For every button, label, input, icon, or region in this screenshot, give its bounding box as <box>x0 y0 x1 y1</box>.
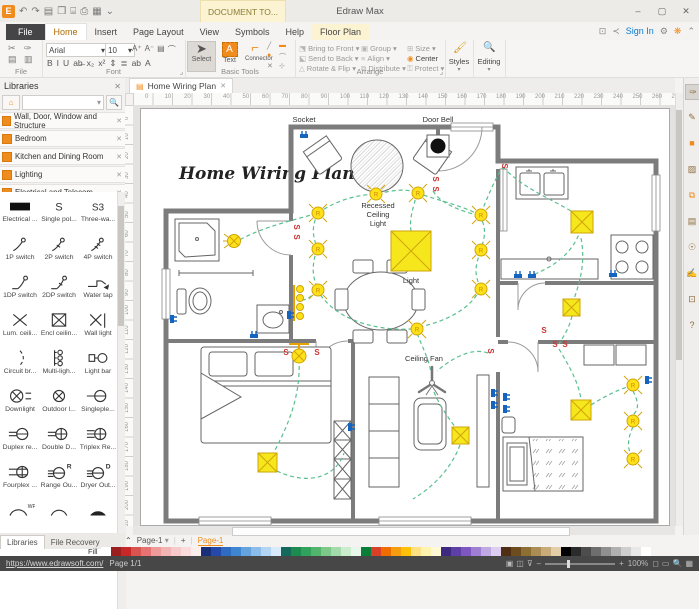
recessed-ceiling-light[interactable] <box>309 204 327 222</box>
color-swatch[interactable] <box>101 547 111 556</box>
sign-in-link[interactable]: Sign In <box>626 26 654 36</box>
open-icon[interactable]: ❒ <box>57 6 66 17</box>
color-swatch[interactable] <box>481 547 491 556</box>
arc-text-icon[interactable]: ⌒ <box>168 44 176 55</box>
color-swatch[interactable] <box>211 547 221 556</box>
symbol-sw2[interactable]: 2P switch <box>40 234 78 261</box>
grow-font-icon[interactable]: A⁺ <box>132 44 142 55</box>
fill-color-icon[interactable]: ■ <box>685 136 699 150</box>
title-bar: E↶↷▤❒⌸⎙▦⌄ DOCUMENT TO... Edraw Max – ▢ ✕ <box>0 0 699 23</box>
switch-symbol[interactable]: S <box>292 234 301 240</box>
color-swatch[interactable] <box>201 547 211 556</box>
recessed-ceiling-light[interactable] <box>309 240 327 258</box>
ceiling-light-main[interactable] <box>391 231 431 271</box>
ellipse-tool-icon[interactable]: ● <box>267 52 278 61</box>
symbol-circ[interactable]: Circuit br... <box>1 348 39 375</box>
h-ruler-tick: 0 <box>145 94 148 100</box>
symbol-arcf[interactable] <box>79 500 117 520</box>
libraries-close-icon[interactable]: ✕ <box>114 82 121 91</box>
v-ruler-tick: 210 <box>125 519 130 526</box>
zoom-slider-knob[interactable] <box>567 560 570 568</box>
h-ruler-tick: 100 <box>340 94 350 100</box>
fit-icons: ◻▭🔍▦ <box>652 559 693 568</box>
magnifier-icon[interactable]: 🔍 <box>672 559 682 568</box>
text-tool-button[interactable]: A Text <box>216 41 243 70</box>
symbol-label: 2DP switch <box>40 292 78 299</box>
canvas-area[interactable]: R Home Wiring Plan <box>133 105 675 526</box>
recessed-label-3: Light <box>370 219 387 228</box>
h-ruler-tick: 200 <box>535 94 545 100</box>
socket-symbol[interactable] <box>503 405 510 413</box>
zoom-level: 100% <box>628 559 648 568</box>
color-swatch[interactable] <box>431 547 441 556</box>
page-view-icon[interactable]: ◫ <box>516 559 524 568</box>
export-icon[interactable]: ▦ <box>92 6 101 17</box>
pen-tool-icon[interactable]: ✎ <box>685 110 699 124</box>
menu-tab-page-layout[interactable]: Page Layout <box>125 24 192 40</box>
symbol-label: Single pol... <box>40 216 78 223</box>
font-name-select[interactable]: Arial▾ <box>46 43 108 57</box>
arrange-item-bring-to-front--[interactable]: ⬔Bring to Front ▾ <box>299 44 359 53</box>
picture-icon[interactable]: ▨ <box>685 162 699 176</box>
symbol-arcwp[interactable]: WP <box>1 500 39 520</box>
color-swatch[interactable] <box>191 547 201 556</box>
symbol-label: Water tap <box>79 292 117 299</box>
symbol-dp1[interactable]: 1DP switch <box>1 272 39 299</box>
ribbon-group-styles: 🖌 Styles ▾ <box>445 40 474 77</box>
symbol-sw4[interactable]: 4P switch <box>79 234 117 261</box>
color-swatch[interactable] <box>261 547 271 556</box>
menu-bar: FileHomeInsertPage LayoutViewSymbolsHelp… <box>0 22 699 40</box>
search-icon[interactable]: 🔍 <box>106 95 122 110</box>
color-swatch[interactable] <box>271 547 281 556</box>
font-expander-icon[interactable]: ⌟ <box>180 69 183 76</box>
switch-symbol[interactable]: S <box>552 340 558 349</box>
recessed-ceiling-light[interactable] <box>309 281 327 299</box>
color-swatch[interactable] <box>611 547 621 556</box>
h-ruler-tick: 80 <box>301 94 308 100</box>
arrange-item-size--[interactable]: ⊞Size ▾ <box>407 44 436 53</box>
color-swatch[interactable] <box>381 547 391 556</box>
color-swatch[interactable] <box>571 547 581 556</box>
symbol-label: Duplex re... <box>1 444 39 451</box>
menu-tab-insert[interactable]: Insert <box>87 24 126 40</box>
switch-symbol[interactable]: S <box>431 176 440 182</box>
ribbon-group-editing: 🔍 Editing ▾ <box>473 40 506 77</box>
color-swatch[interactable] <box>111 547 121 556</box>
wall-light[interactable] <box>223 234 241 248</box>
status-bar: https://www.edrawsoft.com/ Page 1/1 ▣◫⊽ … <box>0 556 699 571</box>
editing-dropdown-icon[interactable]: ▾ <box>473 66 505 73</box>
color-swatch[interactable] <box>601 547 611 556</box>
note-icon[interactable]: ▤ <box>685 214 699 228</box>
arrange-item-center[interactable]: ◉Center <box>407 54 438 63</box>
v-ruler-tick: 170 <box>125 441 130 451</box>
color-swatch[interactable] <box>241 547 251 556</box>
h-ruler-tick: 40 <box>223 94 230 100</box>
color-swatch[interactable] <box>121 547 131 556</box>
symbol-outd[interactable]: Outdoor l... <box>40 386 78 413</box>
drawing-page[interactable]: R Home Wiring Plan <box>140 108 670 526</box>
ribbon: ✂ ✑ ▤ ▥ File Arial▾ 10▾ A⁺A⁻▤⌒ BIUab̶x₂x… <box>0 40 699 78</box>
color-swatch[interactable] <box>521 547 531 556</box>
symbol-label: Double D... <box>40 444 78 451</box>
fit-page-icon[interactable]: ▭ <box>662 559 670 568</box>
h-ruler-tick: 190 <box>516 94 526 100</box>
svg-text:WP: WP <box>28 504 35 510</box>
arrange-item-send-to-back--[interactable]: ⬕Send to Back ▾ <box>299 54 359 63</box>
color-swatch[interactable] <box>591 547 601 556</box>
edit-doc-icon[interactable]: ✍ <box>685 266 699 280</box>
layers-icon[interactable]: ⊽ <box>527 559 533 568</box>
category-close-icon[interactable]: ✕ <box>116 135 122 143</box>
recessed-ceiling-light[interactable] <box>408 320 426 338</box>
menu-tab-home[interactable]: Home <box>45 23 87 40</box>
arrange-expander-icon[interactable]: ⌟ <box>440 69 443 76</box>
color-swatch[interactable] <box>391 547 401 556</box>
styles-button[interactable]: Styles <box>445 57 473 66</box>
color-swatch[interactable] <box>331 547 341 556</box>
symbol-label: Downlight <box>1 406 39 413</box>
share-icon[interactable]: ≺ <box>612 26 620 37</box>
grid-icon[interactable]: ▦ <box>685 559 693 568</box>
ceiling-fan[interactable] <box>419 367 445 395</box>
symbol-down[interactable]: Downlight <box>1 386 39 413</box>
h-ruler-tick: 20 <box>184 94 191 100</box>
v-ruler-tick: 50 <box>125 211 130 218</box>
comment-icon[interactable]: ⊡ <box>685 292 699 306</box>
category-label: Lighting <box>15 170 42 179</box>
help-icon[interactable]: ? <box>685 318 699 332</box>
color-swatch[interactable] <box>131 547 141 556</box>
add-page-button[interactable]: + <box>181 536 186 545</box>
print-icon[interactable]: ⎙ <box>80 6 88 17</box>
zoom-slider[interactable] <box>545 563 615 565</box>
category-close-icon[interactable]: ✕ <box>116 153 122 161</box>
color-swatch[interactable] <box>531 547 541 556</box>
menu-tab-symbols[interactable]: Symbols <box>227 24 278 40</box>
symbol-four[interactable]: Fourplex ... <box>1 462 39 489</box>
recessed-ceiling-light[interactable] <box>472 280 490 298</box>
color-swatch[interactable] <box>151 547 161 556</box>
color-swatch[interactable] <box>621 547 631 556</box>
category-label: Kitchen and Dining Room <box>15 152 103 161</box>
symbol-dbl[interactable]: Double D... <box>40 424 78 451</box>
h-ruler-tick: 60 <box>262 94 269 100</box>
symbol-single[interactable]: Singleple... <box>79 386 117 413</box>
color-swatch[interactable] <box>181 547 191 556</box>
h-ruler-tick: 240 <box>613 94 623 100</box>
library-home-icon[interactable]: ⌂ <box>2 95 20 110</box>
library-category-lighting[interactable]: Lighting✕ <box>0 166 125 183</box>
color-swatch[interactable] <box>301 547 311 556</box>
v-ruler-tick: 60 <box>125 230 130 237</box>
color-swatch[interactable] <box>561 547 571 556</box>
switch-symbol[interactable]: S <box>500 163 509 169</box>
color-swatch[interactable] <box>441 547 451 556</box>
symbol-range[interactable]: RRange Ou... <box>40 462 78 489</box>
fit-width-icon[interactable]: ◻ <box>652 559 659 568</box>
symbol-label: Fourplex ... <box>1 482 39 489</box>
symbol-elec[interactable]: Electrical ... <box>1 196 39 223</box>
switch-symbol[interactable]: S <box>431 186 440 192</box>
h-ruler-tick: 10 <box>165 94 172 100</box>
category-label: Wall, Door, Window and Structure <box>14 112 116 130</box>
font-size-select[interactable]: 10▾ <box>105 43 135 57</box>
ribbon-group-font: Arial▾ 10▾ A⁺A⁻▤⌒ BIUab̶x₂x²⇕≣abA Font ⌟ <box>42 40 186 77</box>
vertical-scrollbar-thumb[interactable] <box>676 110 682 360</box>
v-ruler-tick: 110 <box>125 325 130 335</box>
v-ruler-tick: 100 <box>125 305 130 315</box>
library-icon <box>2 152 12 162</box>
color-swatch[interactable] <box>231 547 241 556</box>
basic-tools-group-label: Basic Tools <box>185 67 295 76</box>
color-swatch[interactable] <box>171 547 181 556</box>
format-brush-icon[interactable]: ✑ <box>24 44 32 53</box>
color-palette <box>101 547 651 556</box>
undo-icon[interactable]: ↶ <box>19 6 27 17</box>
color-swatch[interactable] <box>371 547 381 556</box>
page-selector[interactable]: Page-1 ▾ <box>137 536 169 545</box>
color-swatch[interactable] <box>221 547 231 556</box>
socket-symbol[interactable] <box>300 131 308 138</box>
symbol-tap[interactable]: Water tap <box>79 272 117 299</box>
curve-tool-icon[interactable]: ⌒ <box>279 52 290 61</box>
recessed-ceiling-light[interactable] <box>624 376 642 394</box>
theme-icon[interactable]: ❋ <box>674 26 682 37</box>
zoom-in-button[interactable]: + <box>619 559 624 568</box>
v-ruler-tick: 0 <box>125 117 130 120</box>
paste-icon[interactable]: ▥ <box>24 55 33 64</box>
format-painter-icon[interactable]: ✑ <box>685 84 699 100</box>
recessed-ceiling-light[interactable] <box>409 184 427 202</box>
symbol-label: Triplex Re... <box>79 444 117 451</box>
color-swatch[interactable] <box>251 547 261 556</box>
color-swatch[interactable] <box>161 547 171 556</box>
color-swatch[interactable] <box>471 547 481 556</box>
h-ruler-tick: 30 <box>204 94 211 100</box>
symbol-label: 1P switch <box>1 254 39 261</box>
rect-tool-icon[interactable]: ▬ <box>279 42 290 51</box>
symbol-s1[interactable]: SSingle pol... <box>40 196 78 223</box>
color-swatch[interactable] <box>411 547 421 556</box>
color-swatch[interactable] <box>351 547 361 556</box>
socket-symbol[interactable] <box>503 393 510 401</box>
editing-button[interactable]: Editing <box>473 57 505 66</box>
library-icon <box>2 134 12 144</box>
text-style-icon[interactable]: ▤ <box>157 44 165 55</box>
symbol-dryer[interactable]: DDryer Out... <box>79 462 117 489</box>
h-ruler-tick: 140 <box>418 94 428 100</box>
color-swatch[interactable] <box>341 547 351 556</box>
library-search-input[interactable]: ▾ <box>22 95 104 110</box>
symbol-label: Wall light <box>79 330 117 337</box>
color-swatch[interactable] <box>501 547 511 556</box>
h-ruler-tick: 160 <box>457 94 467 100</box>
library-scrollbar-thumb[interactable] <box>118 206 124 326</box>
h-ruler-tick: 170 <box>477 94 487 100</box>
collapse-ribbon-icon[interactable]: ⌃ <box>687 26 695 37</box>
h-ruler-tick: 220 <box>574 94 584 100</box>
color-swatch[interactable] <box>451 547 461 556</box>
document-tab-close-icon[interactable]: ✕ <box>220 82 226 90</box>
color-swatch[interactable] <box>631 547 641 556</box>
library-category-kitchen-and-dining-room[interactable]: Kitchen and Dining Room✕ <box>0 148 125 165</box>
save-icon[interactable]: ⌸ <box>70 6 76 17</box>
v-ruler-tick: 140 <box>125 383 130 393</box>
color-swatch[interactable] <box>541 547 551 556</box>
color-swatch[interactable] <box>461 547 471 556</box>
arrange-item-group--[interactable]: ▣Group ▾ <box>361 44 397 53</box>
styles-icon: 🖌 <box>453 43 467 54</box>
recessed-ceiling-light[interactable] <box>624 412 642 430</box>
arrange-item-align--[interactable]: ≡Align ▾ <box>361 54 390 63</box>
color-swatch[interactable] <box>281 547 291 556</box>
category-close-icon[interactable]: ✕ <box>116 171 122 179</box>
edrawsoft-link[interactable]: https://www.edrawsoft.com/ <box>6 559 103 568</box>
h-ruler-tick: 210 <box>555 94 565 100</box>
document-tools-context-tab[interactable]: DOCUMENT TO... <box>200 0 286 24</box>
copy-icon[interactable]: ▤ <box>8 55 17 64</box>
switch-symbol[interactable]: S <box>541 326 547 335</box>
symbol-multi[interactable]: Multi-ligh... <box>40 348 78 375</box>
page-tab-row: ⌃ Page-1 ▾ | + | Page-1 <box>125 535 699 546</box>
color-swatch[interactable] <box>511 547 521 556</box>
collapse-panel-icon[interactable]: ⌃ <box>125 536 132 545</box>
color-swatch[interactable] <box>641 547 651 556</box>
view-mode-icons: ▣◫⊽ <box>506 559 533 568</box>
switch-symbol[interactable]: S <box>562 340 568 349</box>
font-group-label: Font <box>42 67 185 76</box>
socket-symbol[interactable] <box>170 315 177 323</box>
snapshot-icon[interactable]: ⊡ <box>599 26 607 37</box>
color-swatch[interactable] <box>581 547 591 556</box>
recessed-ceiling-light[interactable] <box>624 450 642 468</box>
v-ruler-tick: 90 <box>125 289 130 296</box>
switch-symbol[interactable]: S <box>486 348 495 354</box>
color-swatch[interactable] <box>491 547 501 556</box>
library-icon <box>2 116 11 126</box>
menu-tab-file[interactable]: File <box>6 24 45 40</box>
color-swatch[interactable] <box>321 547 331 556</box>
v-ruler-tick: 80 <box>125 269 130 276</box>
recessed-ceiling-light[interactable] <box>472 241 490 259</box>
h-ruler-tick: 130 <box>399 94 409 100</box>
libraries-panel-header: Libraries ✕ <box>0 78 125 94</box>
text-icon: A <box>222 42 238 57</box>
menu-tab-floor-plan[interactable]: Floor Plan <box>312 24 369 40</box>
color-swatch[interactable] <box>141 547 151 556</box>
switch-symbol[interactable]: S <box>283 348 289 357</box>
ribbon-group-arrange: ⬔Bring to Front ▾⬕Send to Back ▾△Rotate … <box>295 40 446 77</box>
document-tab[interactable]: ▤ Home Wiring Plan ✕ <box>129 78 233 93</box>
close-button[interactable]: ✕ <box>675 2 697 20</box>
symbol-dupl[interactable]: Duplex re... <box>1 424 39 451</box>
h-ruler-tick: 150 <box>438 94 448 100</box>
symbol-sw1[interactable]: 1P switch <box>1 234 39 261</box>
symbol-label: Three-wa... <box>79 216 117 223</box>
color-swatch[interactable] <box>421 547 431 556</box>
page-tab[interactable]: Page-1 <box>198 536 224 546</box>
font-row1: A⁺A⁻▤⌒ <box>132 44 176 55</box>
redo-icon[interactable]: ↷ <box>31 6 39 17</box>
h-ruler-tick: 110 <box>360 94 370 100</box>
styles-dropdown-icon[interactable]: ▾ <box>445 66 473 73</box>
color-swatch[interactable] <box>291 547 301 556</box>
middle-room-furniture <box>369 375 489 487</box>
connector-icon: ⌐ <box>245 41 265 55</box>
color-swatch[interactable] <box>311 547 321 556</box>
switch-symbol[interactable]: S <box>314 348 320 357</box>
color-swatch[interactable] <box>551 547 561 556</box>
h-ruler-tick: 260 <box>652 94 662 100</box>
color-swatch[interactable] <box>361 547 371 556</box>
web-icon[interactable]: ☉ <box>685 240 699 254</box>
symbol-dp2[interactable]: 2DP switch <box>40 272 78 299</box>
v-ruler-tick: 70 <box>125 250 130 257</box>
connector-tool-button[interactable]: ⌐ Connector <box>245 41 265 70</box>
h-ruler-tick: 70 <box>282 94 289 100</box>
category-close-icon[interactable]: ✕ <box>116 117 122 125</box>
color-swatch[interactable] <box>401 547 411 556</box>
new-file-icon[interactable]: ▤ <box>44 6 53 17</box>
symbol-arc[interactable] <box>40 500 78 520</box>
v-ruler-tick: 10 <box>125 133 130 140</box>
symbol-lum[interactable]: Lum. ceili... <box>1 310 39 337</box>
menu-tab-help[interactable]: Help <box>277 24 312 40</box>
socket-symbol[interactable] <box>645 376 652 384</box>
symbol-label: Multi-ligh... <box>40 368 78 375</box>
symbol-label: Circuit br... <box>1 368 39 375</box>
symbol-wall[interactable]: Wall light <box>79 310 117 337</box>
v-ruler-tick: 200 <box>125 500 130 510</box>
h-ruler-tick: 50 <box>243 94 250 100</box>
switch-symbol[interactable]: S <box>292 224 301 230</box>
zoom-out-button[interactable]: – <box>537 559 541 568</box>
minimize-button[interactable]: – <box>627 2 649 20</box>
symbol-encl[interactable]: Encl ceilin... <box>40 310 78 337</box>
v-ruler-tick: 160 <box>125 422 130 432</box>
symbol-label: Encl ceilin... <box>40 330 78 337</box>
libraries-panel-title: Libraries <box>4 81 39 91</box>
symbol-label: Electrical ... <box>1 216 39 223</box>
gear-icon[interactable]: ⚙ <box>660 26 668 37</box>
panel-tab-libraries[interactable]: Libraries <box>0 535 45 549</box>
app-logo[interactable]: E <box>2 5 15 18</box>
recessed-ceiling-light[interactable] <box>472 206 490 224</box>
library-category-bedroom[interactable]: Bedroom✕ <box>0 130 125 147</box>
ceiling-fan-label: Ceiling Fan <box>405 354 443 363</box>
quick-access-toolbar: E↶↷▤❒⌸⎙▦⌄ <box>2 2 114 20</box>
menu-tab-view[interactable]: View <box>192 24 227 40</box>
menu-right-icons: ⊡≺Sign In⚙❋⌃ <box>599 22 695 40</box>
shape-library-icon[interactable]: ⧉ <box>685 188 699 202</box>
v-ruler-tick: 150 <box>125 402 130 412</box>
cut-icon[interactable]: ✂ <box>8 44 16 53</box>
symbol-tri[interactable]: Triplex Re... <box>79 424 117 451</box>
shrink-font-icon[interactable]: A⁻ <box>145 44 155 55</box>
customize-quick-access-icon[interactable]: ⌄ <box>106 6 114 17</box>
line-tool-icon[interactable]: ╱ <box>267 42 278 51</box>
recessed-label-2: Ceiling <box>367 210 390 219</box>
maximize-button[interactable]: ▢ <box>651 2 673 20</box>
pan-icon[interactable]: ▣ <box>506 559 514 568</box>
symbol-lbar[interactable]: Light bar <box>79 348 117 375</box>
symbol-s3[interactable]: S3Three-wa... <box>79 196 117 223</box>
library-category-wall[interactable]: Wall, Door, Window and Structure✕ <box>0 112 125 129</box>
socket-label: Socket <box>293 115 317 124</box>
ribbon-group-file: ✂ ✑ ▤ ▥ File <box>0 40 43 77</box>
